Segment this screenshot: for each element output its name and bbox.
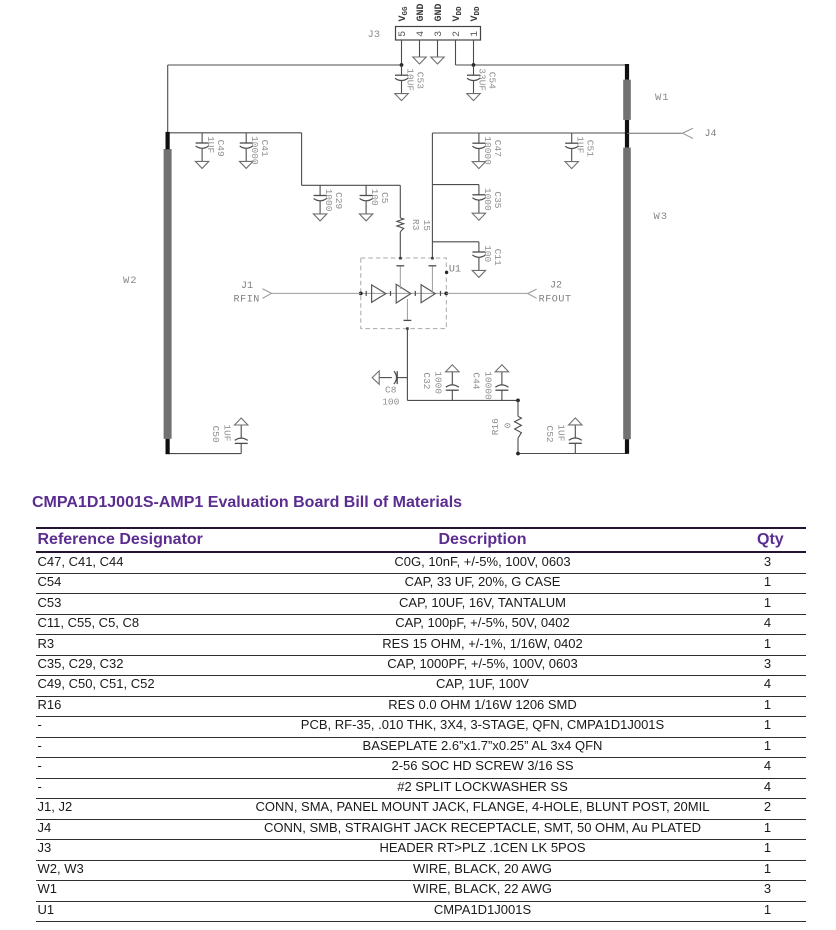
svg-text:C54: C54	[487, 72, 498, 89]
svg-text:1000: 1000	[323, 189, 334, 212]
svg-text:J3: J3	[368, 29, 381, 41]
svg-text:C5: C5	[379, 192, 390, 204]
svg-text:C32: C32	[421, 372, 432, 389]
svg-text:R16: R16	[490, 418, 501, 435]
svg-text:10000: 10000	[249, 136, 260, 165]
svg-text:10000: 10000	[482, 136, 493, 165]
svg-text:W3: W3	[654, 211, 669, 223]
svg-text:1UF: 1UF	[556, 424, 567, 441]
svg-text:1: 1	[470, 31, 481, 37]
svg-text:1000: 1000	[433, 371, 444, 394]
svg-text:W1: W1	[655, 92, 670, 104]
svg-text:10UF: 10UF	[404, 68, 415, 91]
svg-text:100: 100	[369, 189, 380, 206]
svg-text:RFIN: RFIN	[234, 295, 260, 306]
svg-text:VGG: VGG	[398, 6, 410, 22]
svg-text:3: 3	[434, 31, 445, 37]
svg-text:1UF: 1UF	[575, 136, 586, 153]
svg-text:GND: GND	[416, 3, 427, 21]
svg-text:VDD: VDD	[452, 6, 464, 22]
svg-text:4: 4	[416, 31, 427, 37]
svg-text:C47: C47	[492, 140, 503, 157]
svg-text:2: 2	[452, 31, 463, 37]
svg-text:VDD: VDD	[470, 6, 482, 22]
svg-text:J2: J2	[550, 280, 562, 291]
svg-text:GND: GND	[434, 3, 445, 21]
svg-text:C50: C50	[210, 426, 221, 443]
svg-text:C52: C52	[544, 426, 555, 443]
svg-text:33UF: 33UF	[476, 68, 487, 91]
svg-text:C44: C44	[471, 372, 482, 389]
svg-text:15: 15	[421, 220, 432, 232]
svg-text:C11: C11	[492, 249, 503, 266]
svg-text:100: 100	[382, 397, 399, 408]
svg-text:1UF: 1UF	[205, 136, 216, 153]
svg-text:C41: C41	[259, 140, 270, 157]
svg-text:C8: C8	[385, 384, 397, 395]
svg-text:J4: J4	[705, 129, 717, 140]
svg-text:R3: R3	[410, 219, 421, 231]
svg-text:W2: W2	[123, 275, 138, 287]
svg-text:C29: C29	[333, 192, 344, 209]
svg-text:5: 5	[398, 31, 409, 37]
svg-text:C53: C53	[415, 72, 426, 89]
svg-text:C35: C35	[492, 191, 503, 208]
svg-text:1UF: 1UF	[222, 424, 233, 441]
svg-text:10000: 10000	[482, 371, 493, 400]
svg-text:J1: J1	[241, 281, 253, 292]
svg-text:1000: 1000	[482, 188, 493, 211]
svg-text:U1: U1	[449, 264, 461, 275]
svg-text:C51: C51	[585, 140, 596, 157]
svg-text:100: 100	[482, 245, 493, 262]
svg-text:RFOUT: RFOUT	[539, 294, 572, 305]
svg-text:0: 0	[502, 422, 513, 428]
svg-text:C49: C49	[215, 140, 226, 157]
